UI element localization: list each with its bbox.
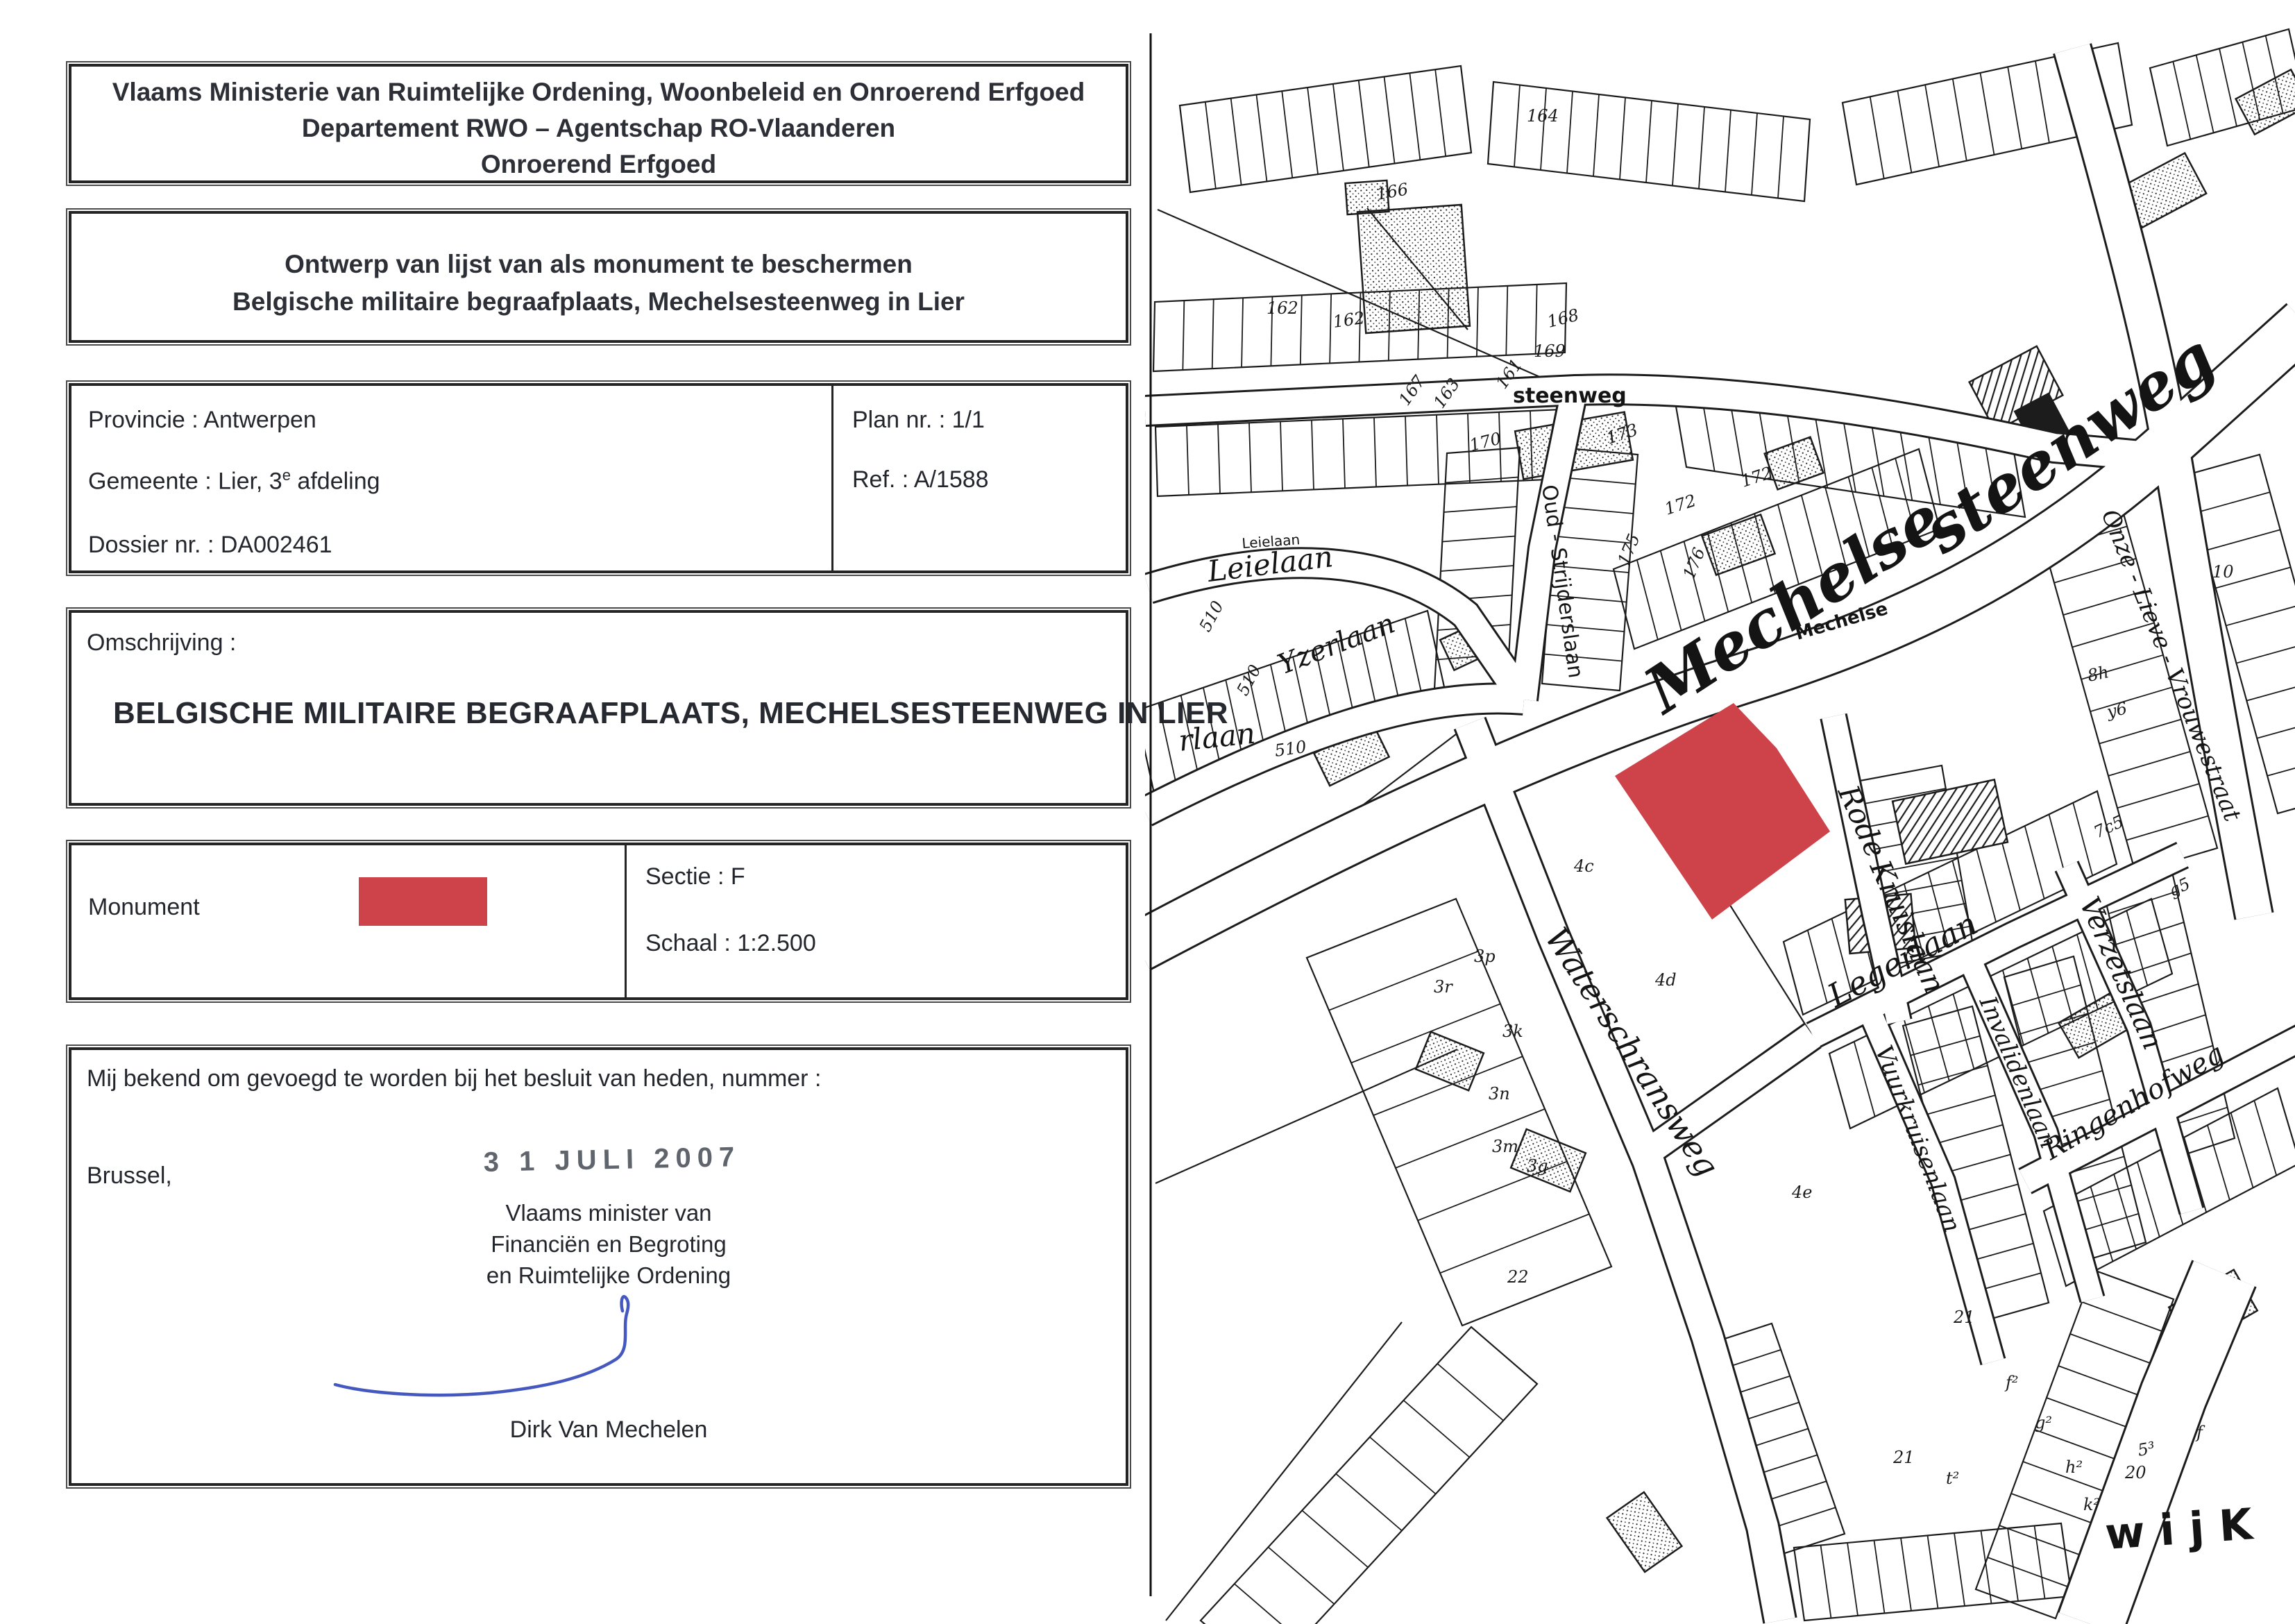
title-line-2: Belgische militaire begraafplaats, Meche…: [67, 283, 1130, 320]
building-footprint: [1607, 1492, 1682, 1572]
parcel-number-label: 20: [2124, 1463, 2146, 1482]
ministry-line-3: Onroerend Erfgoed: [67, 146, 1130, 183]
parcel-number-label: 176: [1679, 545, 1709, 582]
parcel-number-label: t²: [1946, 1469, 1959, 1488]
parcel-number-label: 169: [1534, 341, 1566, 361]
parcel-number-label: 4c: [1573, 856, 1594, 876]
building-footprint: [1416, 1032, 1484, 1090]
parcel-number-label: 168: [1545, 305, 1581, 332]
description-box: Omschrijving : BELGISCHE MILITAIRE BEGRA…: [66, 607, 1131, 809]
title-box: Ontwerp van lijst van als monument te be…: [66, 208, 1131, 346]
parcel-number-label: y6: [2104, 698, 2128, 722]
info-box: Provincie : Antwerpen Gemeente : Lier, 3…: [66, 380, 1131, 576]
parcel-number-label: 10: [2212, 562, 2234, 582]
parcel-number-label: 3n: [1489, 1084, 1510, 1103]
decree-box: Mij bekend om gevoegd te worden bij het …: [66, 1044, 1131, 1489]
ministry-line-2: Departement RWO – Agentschap RO-Vlaander…: [67, 110, 1130, 146]
monument-label: Monument: [88, 894, 200, 921]
municipality-field: Gemeente : Lier, 3e afdeling: [88, 466, 380, 495]
parcel-number-label: 3r: [1434, 977, 1453, 997]
description-label: Omschrijving :: [87, 629, 236, 657]
parcel-number-label: 162: [1332, 308, 1366, 332]
parcel-number-label: 3g: [1527, 1156, 1548, 1176]
title-line-1: Ontwerp van lijst van als monument te be…: [67, 246, 1130, 282]
parcel-number-label: f: [2195, 1423, 2205, 1442]
parcel-number-label: 21: [1892, 1448, 1915, 1467]
parcel-number-label: 8h: [2085, 662, 2110, 686]
legend-box: Monument Sectie : F Schaal : 1:2.500: [66, 840, 1131, 1003]
parcel-number-label: h²: [2065, 1457, 2083, 1477]
parcel-number-label: 3k: [1502, 1022, 1523, 1041]
description-value: BELGISCHE MILITAIRE BEGRAAFPLAATS, MECHE…: [113, 696, 1228, 731]
parcel-number-label: 172: [1738, 463, 1775, 491]
signatory-name: Dirk Van Mechelen: [400, 1416, 817, 1444]
plan-number-field: Plan nr. : 1/1: [852, 407, 985, 434]
province-field: Provincie : Antwerpen: [88, 407, 316, 434]
parcel-number-label: 170: [1468, 429, 1503, 455]
building-footprint: [1511, 1129, 1586, 1192]
monument-color-swatch: [359, 877, 487, 926]
schaal-field: Schaal : 1:2.500: [645, 930, 816, 957]
parcel-number-label: 21: [1953, 1308, 1975, 1327]
parcel-number-label: 164: [1527, 106, 1559, 126]
parcel-number-label: 4e: [1791, 1183, 1812, 1202]
parcel-number-label: 4d: [1654, 970, 1677, 990]
parcel-number-label: f²: [2004, 1373, 2019, 1392]
parcel-number-label: 7c5: [2091, 811, 2127, 842]
street-label: Invalidenlaan: [1973, 992, 2063, 1153]
street-label: Rode: [1831, 779, 1892, 863]
parcel-number-label: 22: [1507, 1267, 1529, 1287]
street-label: Yzerlaan: [1273, 607, 1399, 681]
parcel-number-label: 510: [1233, 661, 1265, 699]
dossier-field: Dossier nr. : DA002461: [88, 532, 332, 559]
parcel-number-label: 3p: [1474, 947, 1496, 966]
parcel-number-label: 175: [1614, 531, 1644, 568]
parcel-number-label: k²: [2083, 1495, 2100, 1514]
street-label: steenweg: [1513, 384, 1627, 408]
parcel-number-label: g²: [2035, 1413, 2052, 1432]
parcel-number-label: 162: [1267, 298, 1298, 318]
sectie-field: Sectie : F: [645, 863, 745, 890]
street-label: w i j K: [2103, 1498, 2255, 1559]
parcel-number-label: 510: [1196, 598, 1228, 635]
ref-field: Ref. : A/1588: [852, 466, 989, 493]
parcel-number-label: 3m: [1492, 1137, 1518, 1156]
building-footprint: [1892, 779, 2008, 863]
building-footprint: [1702, 514, 1775, 575]
parcel-number-label: g5: [2166, 874, 2194, 900]
legend-box-divider: [625, 845, 627, 997]
parcel-number-label: 172: [1662, 491, 1698, 519]
ministry-line-1: Vlaams Ministerie van Ruimtelijke Ordeni…: [67, 74, 1130, 110]
info-box-divider: [831, 386, 833, 570]
cadastral-map: MechelseMechelsesteenwegsteenwegRodeKrui…: [1145, 0, 2295, 1624]
ministry-header-box: Vlaams Ministerie van Ruimtelijke Ordeni…: [66, 61, 1131, 186]
scanned-protection-decree-page: Vlaams Ministerie van Ruimtelijke Ordeni…: [0, 0, 2295, 1624]
parcel-number-label: 5³: [2136, 1438, 2156, 1460]
building-footprint: [1357, 205, 1470, 333]
